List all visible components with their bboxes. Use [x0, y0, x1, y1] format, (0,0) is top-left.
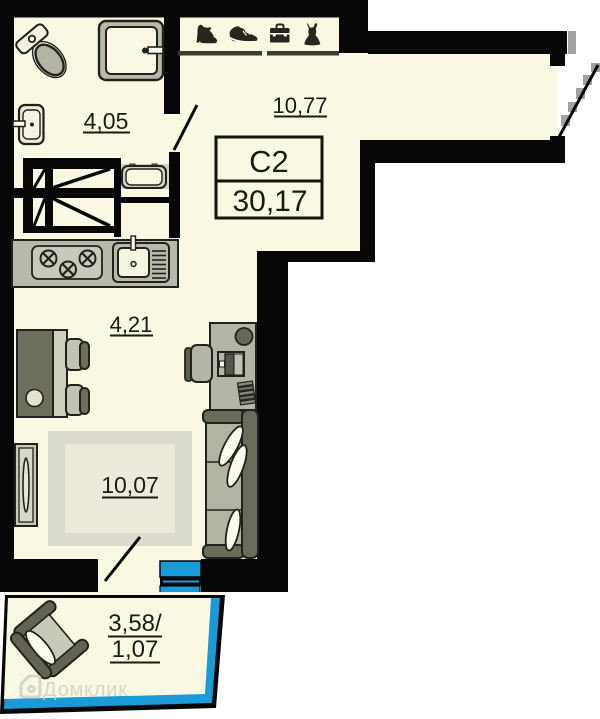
svg-text:1,07: 1,07 [112, 636, 159, 663]
svg-text:10,77: 10,77 [272, 93, 327, 118]
svg-text:4,21: 4,21 [110, 312, 153, 337]
svg-text:30,17: 30,17 [232, 185, 307, 218]
svg-text:С2: С2 [249, 144, 289, 179]
svg-text:3,58/: 3,58/ [108, 610, 162, 637]
svg-text:Домклик: Домклик [43, 679, 128, 701]
svg-text:4,05: 4,05 [84, 108, 129, 134]
svg-text:10,07: 10,07 [101, 472, 159, 498]
